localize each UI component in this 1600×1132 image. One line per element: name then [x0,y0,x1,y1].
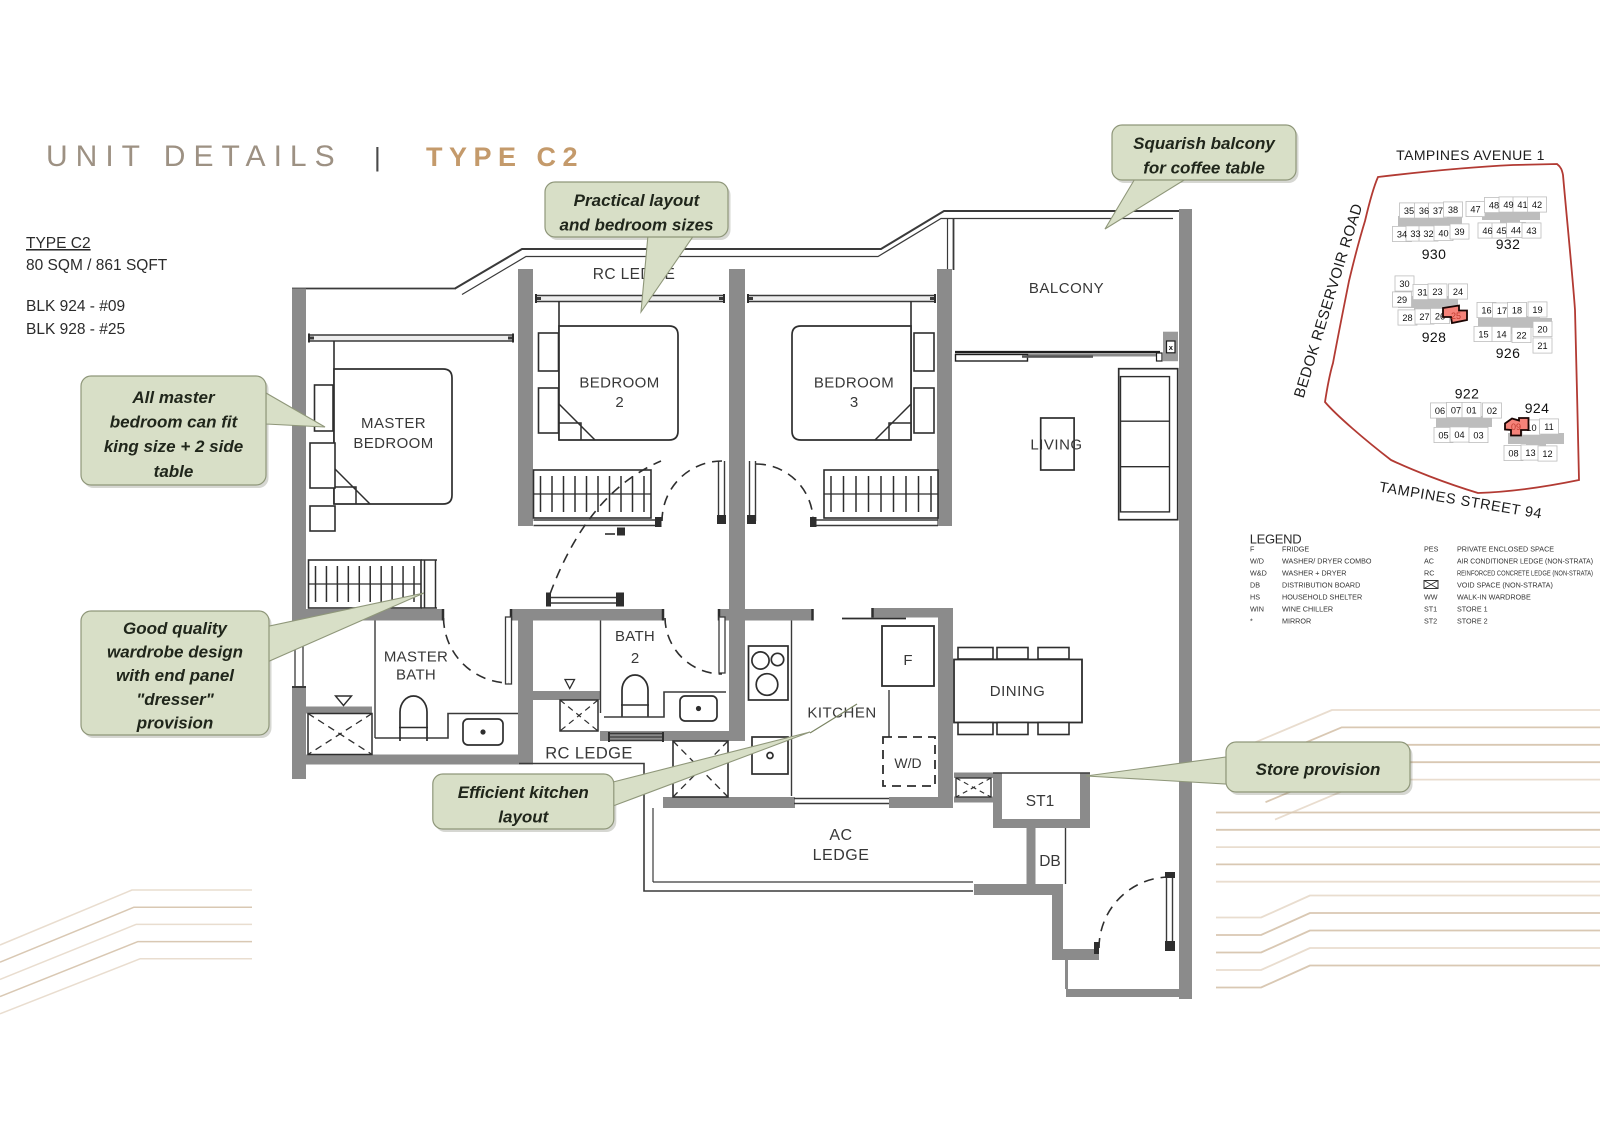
svg-text:*: * [1250,617,1253,626]
svg-text:44: 44 [1511,225,1521,235]
svg-text:ST1: ST1 [1424,605,1437,614]
svg-text:DINING: DINING [990,683,1046,700]
svg-text:49: 49 [1503,200,1513,210]
svg-text:40: 40 [1438,228,1448,238]
svg-text:WW: WW [1424,593,1438,602]
svg-text:27: 27 [1419,312,1429,322]
svg-text:for coffee table: for coffee table [1143,159,1265,178]
svg-text:LEDGE: LEDGE [813,847,870,864]
svg-text:43: 43 [1526,226,1536,236]
svg-text:01: 01 [1466,405,1476,415]
svg-text:12: 12 [1542,449,1552,459]
svg-text:932: 932 [1496,236,1521,252]
svg-text:table: table [154,462,194,481]
svg-text:DB: DB [1039,853,1061,870]
svg-text:provision: provision [136,713,214,732]
svg-text:06: 06 [1435,406,1445,416]
svg-text:FRIDGE: FRIDGE [1282,545,1309,554]
svg-text:W&D: W&D [1250,569,1267,578]
svg-text:BLK 924 - #09: BLK 924 - #09 [26,298,125,315]
svg-text:BEDROOM: BEDROOM [814,375,894,392]
svg-text:Squarish balcony: Squarish balcony [1133,134,1276,153]
svg-text:11: 11 [1544,422,1554,432]
svg-text:924: 924 [1525,400,1550,416]
svg-text:926: 926 [1496,345,1521,361]
svg-text:AIR CONDITIONER LEDGE (NON-STR: AIR CONDITIONER LEDGE (NON-STRATA) [1457,557,1593,566]
svg-text:Efficient kitchen: Efficient kitchen [458,783,589,802]
svg-text:HOUSEHOLD SHELTER: HOUSEHOLD SHELTER [1282,593,1362,602]
svg-text:29: 29 [1397,295,1407,305]
svg-text:AC: AC [829,827,852,844]
svg-text:09: 09 [1511,422,1521,432]
svg-text:BEDROOM: BEDROOM [353,435,433,452]
svg-text:bedroom can fit: bedroom can fit [110,413,239,432]
svg-text:20: 20 [1537,324,1547,334]
svg-text:04: 04 [1454,430,1464,440]
svg-text:W/D: W/D [894,755,921,771]
svg-text:with end panel: with end panel [116,666,235,685]
svg-text:24: 24 [1453,287,1463,297]
svg-text:36: 36 [1419,206,1429,216]
svg-text:922: 922 [1455,386,1480,402]
svg-text:48: 48 [1489,200,1499,210]
svg-text:STORE 1: STORE 1 [1457,605,1488,614]
svg-text:23: 23 [1432,287,1442,297]
svg-text:TYPE C2: TYPE C2 [426,142,584,172]
svg-text:37: 37 [1433,206,1443,216]
svg-text:TAMPINES AVENUE 1: TAMPINES AVENUE 1 [1396,147,1545,163]
svg-text:14: 14 [1496,329,1506,339]
svg-text:31: 31 [1417,287,1427,297]
svg-text:DISTRIBUTION BOARD: DISTRIBUTION BOARD [1282,581,1360,590]
svg-text:02: 02 [1487,406,1497,416]
svg-text:28: 28 [1402,313,1412,323]
svg-text:PES: PES [1424,545,1439,554]
svg-text:41: 41 [1517,200,1527,210]
svg-text:ST1: ST1 [1026,793,1054,810]
svg-text:07: 07 [1451,405,1461,415]
svg-text:and bedroom sizes: and bedroom sizes [560,216,714,235]
svg-text:17: 17 [1497,306,1507,316]
svg-text:BEDROOM: BEDROOM [579,375,659,392]
svg-text:2: 2 [615,394,623,411]
svg-text:RC: RC [1424,569,1434,578]
svg-text:king size + 2 side: king size + 2 side [104,437,243,456]
svg-text:Good quality: Good quality [123,619,228,638]
svg-text:DB: DB [1250,581,1260,590]
svg-text:RC LEDGE: RC LEDGE [545,745,633,763]
svg-text:PRIVATE ENCLOSED SPACE: PRIVATE ENCLOSED SPACE [1457,545,1554,554]
svg-text:21: 21 [1537,341,1547,351]
svg-text:47: 47 [1470,204,1480,214]
svg-text:UNIT DETAILS: UNIT DETAILS [46,140,343,173]
svg-text:22: 22 [1516,330,1526,340]
svg-text:38: 38 [1448,205,1458,215]
svg-text:BATH: BATH [615,628,655,645]
svg-text:All master: All master [131,388,216,407]
svg-text:W/D: W/D [1250,557,1264,566]
svg-text:MIRROR: MIRROR [1282,617,1311,626]
svg-text:MASTER: MASTER [384,649,448,666]
svg-text:930: 930 [1422,246,1447,262]
svg-text:BATH: BATH [396,667,436,684]
svg-text:HS: HS [1250,593,1260,602]
svg-text:BLK 928 - #25: BLK 928 - #25 [26,321,125,338]
svg-text:80 SQM / 861 SQFT: 80 SQM / 861 SQFT [26,257,168,274]
svg-text:VOID SPACE (NON-STRATA): VOID SPACE (NON-STRATA) [1457,581,1553,590]
svg-text:TYPE C2: TYPE C2 [26,235,91,252]
svg-text:39: 39 [1454,227,1464,237]
svg-text:Practical layout: Practical layout [574,191,701,210]
svg-text:45: 45 [1496,226,1506,236]
svg-text:Store provision: Store provision [1256,760,1381,779]
svg-text:BALCONY: BALCONY [1029,280,1104,297]
svg-text:F: F [1250,545,1255,554]
svg-text:|: | [374,142,381,172]
svg-text:WASHER/ DRYER COMBO: WASHER/ DRYER COMBO [1282,557,1372,566]
svg-text:STORE 2: STORE 2 [1457,617,1488,626]
svg-text:32: 32 [1423,229,1433,239]
svg-text:18: 18 [1512,305,1522,315]
svg-text:35: 35 [1404,206,1414,216]
svg-text:MASTER: MASTER [361,415,426,432]
svg-text:"dresser": "dresser" [136,690,214,709]
svg-text:42: 42 [1532,200,1542,210]
svg-text:46: 46 [1482,226,1492,236]
svg-text:WASHER + DRYER: WASHER + DRYER [1282,569,1347,578]
svg-text:16: 16 [1481,305,1491,315]
svg-text:WINE CHILLER: WINE CHILLER [1282,605,1333,614]
svg-text:WIN: WIN [1250,605,1264,614]
svg-text:layout: layout [498,808,549,827]
svg-text:928: 928 [1422,329,1447,345]
svg-text:3: 3 [850,394,858,411]
svg-text:WALK-IN WARDROBE: WALK-IN WARDROBE [1457,593,1531,602]
svg-text:34: 34 [1397,229,1407,239]
svg-text:25: 25 [1451,311,1461,321]
svg-text:REINFORCED CONCRETE LEDGE (NON: REINFORCED CONCRETE LEDGE (NON-STRATA) [1457,569,1593,578]
svg-text:ST2: ST2 [1424,617,1437,626]
svg-text:F: F [903,652,912,669]
svg-text:2: 2 [631,650,639,667]
svg-text:30: 30 [1399,279,1409,289]
svg-text:33: 33 [1410,229,1420,239]
svg-text:03: 03 [1473,430,1483,440]
svg-text:15: 15 [1478,329,1488,339]
svg-text:08: 08 [1508,448,1518,458]
svg-text:05: 05 [1438,430,1448,440]
svg-text:19: 19 [1532,305,1542,315]
svg-text:wardrobe design: wardrobe design [107,643,243,662]
svg-text:13: 13 [1525,448,1535,458]
svg-text:LIVING: LIVING [1030,437,1082,454]
svg-text:AC: AC [1424,557,1434,566]
